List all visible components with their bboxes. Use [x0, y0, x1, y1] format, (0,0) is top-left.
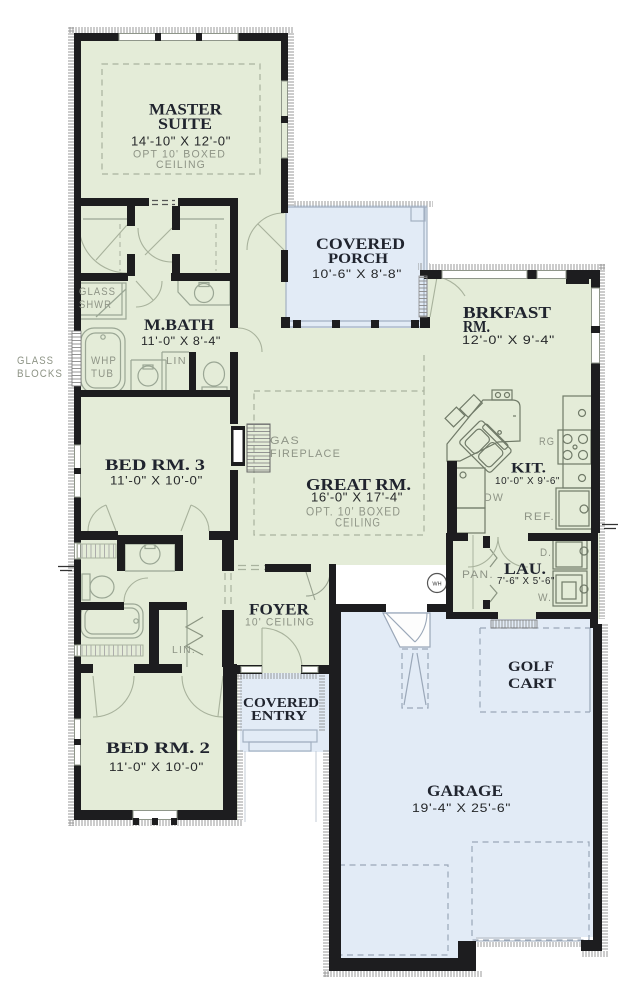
svg-text:19'-4" X 25'-6": 19'-4" X 25'-6": [412, 801, 511, 815]
svg-text:16'-0" X 17'-4": 16'-0" X 17'-4": [311, 491, 403, 505]
svg-text:GARAGE: GARAGE: [427, 783, 503, 800]
svg-text:LIN: LIN: [166, 356, 187, 367]
svg-text:RG: RG: [539, 436, 555, 448]
svg-text:BLOCKS: BLOCKS: [17, 368, 63, 380]
svg-text:LIN.: LIN.: [172, 645, 196, 656]
svg-text:WH: WH: [432, 582, 441, 588]
svg-text:SHWR: SHWR: [79, 299, 112, 311]
svg-text:SUITE: SUITE: [158, 116, 212, 133]
svg-text:11'-0" X 10'-0": 11'-0" X 10'-0": [109, 762, 204, 774]
svg-text:11'-0" X 10'-0": 11'-0" X 10'-0": [110, 476, 203, 488]
svg-text:DW: DW: [484, 492, 504, 504]
svg-text:WHP: WHP: [91, 355, 117, 367]
svg-text:CEILING: CEILING: [156, 159, 206, 171]
svg-text:ENTRY: ENTRY: [251, 709, 307, 724]
svg-text:COVERED: COVERED: [243, 695, 319, 710]
svg-text:11'-0" X 8'-4": 11'-0" X 8'-4": [141, 334, 221, 348]
svg-text:CEILING: CEILING: [335, 518, 381, 530]
svg-text:14'-10" X 12'-0": 14'-10" X 12'-0": [131, 135, 231, 149]
svg-text:10'-6" X 8'-8": 10'-6" X 8'-8": [312, 267, 402, 281]
svg-text:D.: D.: [540, 547, 552, 559]
svg-text:12'-0" X 9'-4": 12'-0" X 9'-4": [462, 333, 555, 347]
svg-text:FIREPLACE: FIREPLACE: [270, 448, 341, 460]
svg-text:GAS: GAS: [270, 435, 300, 447]
svg-text:GOLF: GOLF: [508, 659, 554, 675]
svg-text:10'-0" X 9'-6": 10'-0" X 9'-6": [495, 475, 560, 487]
svg-text:PORCH: PORCH: [328, 251, 388, 267]
svg-text:7'-6" X 5'-6": 7'-6" X 5'-6": [497, 575, 555, 587]
svg-text:PAN.: PAN.: [462, 569, 494, 581]
svg-text:GLASS: GLASS: [17, 355, 54, 367]
svg-text:TUB: TUB: [91, 368, 114, 380]
svg-text:GLASS: GLASS: [79, 286, 116, 298]
svg-text:BED RM. 3: BED RM. 3: [105, 457, 205, 474]
svg-text:W.: W.: [538, 592, 552, 604]
svg-text:BED RM. 2: BED RM. 2: [106, 740, 210, 757]
svg-text:10' CEILING: 10' CEILING: [245, 617, 315, 629]
svg-text:REF.: REF.: [524, 511, 555, 523]
svg-text:M.BATH: M.BATH: [144, 317, 214, 334]
svg-text:CART: CART: [508, 676, 556, 692]
